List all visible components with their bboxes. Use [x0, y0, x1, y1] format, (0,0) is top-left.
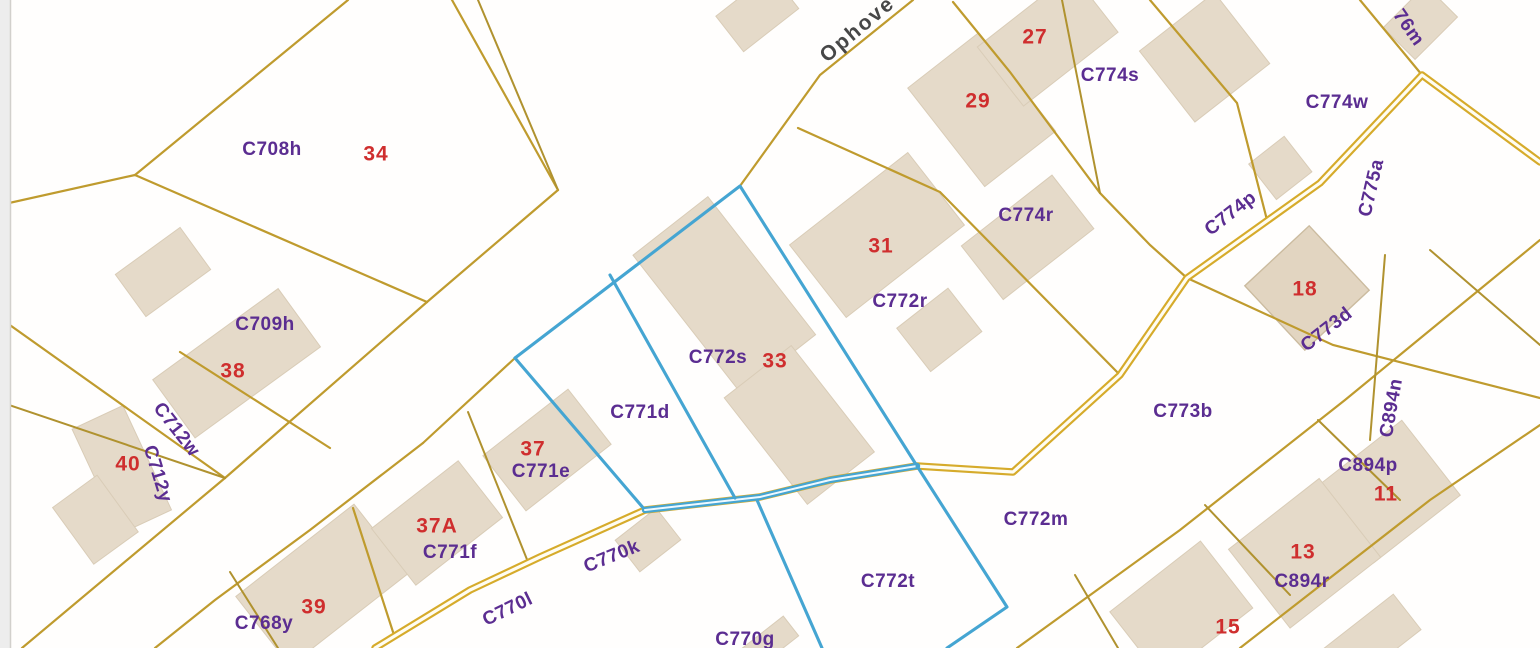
parcel-label-C774r: C774r — [998, 205, 1053, 226]
map-canvas[interactable]: Ophove C708hC709hC712wC712yC768yC771fC77… — [0, 0, 1540, 648]
parcel-label-C774w: C774w — [1306, 92, 1369, 113]
house-number-37: 37 — [520, 438, 545, 461]
parcel-label-C709h: C709h — [235, 314, 295, 335]
building — [1322, 594, 1421, 648]
parcel-label-C772r: C772r — [872, 291, 927, 312]
house-number-18: 18 — [1292, 278, 1317, 301]
street-name-Ophove: Ophove — [815, 0, 899, 67]
house-number-38: 38 — [220, 360, 245, 383]
parcel-label-C770k: C770k — [581, 536, 643, 577]
parcel-label-C894r: C894r — [1274, 571, 1329, 592]
house-number-31: 31 — [868, 235, 893, 258]
house-number-27: 27 — [1022, 26, 1047, 49]
parcel-label-C770g: C770g — [715, 629, 775, 648]
house-number-33: 33 — [762, 350, 787, 373]
parcel-label-C771d: C771d — [610, 402, 670, 423]
house-number-13: 13 — [1290, 541, 1315, 564]
parcel-boundary-line — [423, 358, 515, 443]
cadastral-map-viewport[interactable]: Ophove C708hC709hC712wC712yC768yC771fC77… — [0, 0, 1540, 648]
house-number-37A: 37A — [416, 515, 458, 538]
parcel-boundary-line — [427, 190, 558, 302]
parcel-label-C770l: C770l — [479, 588, 536, 630]
parcel-label-C894p: C894p — [1338, 455, 1398, 476]
page-edge-strip — [0, 0, 10, 648]
house-number-29: 29 — [965, 90, 990, 113]
house-number-34: 34 — [363, 143, 388, 166]
parcel-boundary-line — [0, 175, 135, 205]
parcel-boundary-line — [452, 0, 558, 190]
parcel-label-C771f: C771f — [423, 542, 477, 563]
house-number-11: 11 — [1374, 483, 1398, 506]
parcel-label-C708h: C708h — [242, 139, 302, 160]
parcel-boundary-line — [478, 0, 558, 190]
building — [716, 0, 799, 52]
parcel-boundary-line — [1430, 250, 1540, 345]
parcel-label-C772t: C772t — [861, 571, 915, 592]
house-number-15: 15 — [1215, 616, 1240, 639]
building — [115, 227, 210, 316]
parcel-label-C773b: C773b — [1153, 401, 1213, 422]
building — [1139, 0, 1269, 122]
house-number-39: 39 — [301, 596, 326, 619]
house-number-40: 40 — [115, 453, 140, 476]
parcel-label-C775a: C775a — [1355, 157, 1389, 219]
parcel-label-C771e: C771e — [512, 461, 571, 482]
parcel-label-C772m: C772m — [1004, 509, 1069, 530]
selected-parcel-c772t-east — [917, 466, 1007, 648]
parcel-label-C772s: C772s — [689, 347, 748, 368]
parcel-label-C774s: C774s — [1081, 65, 1140, 86]
parcel-label-C768y: C768y — [235, 613, 294, 634]
street-labels-layer: Ophove — [815, 0, 899, 67]
